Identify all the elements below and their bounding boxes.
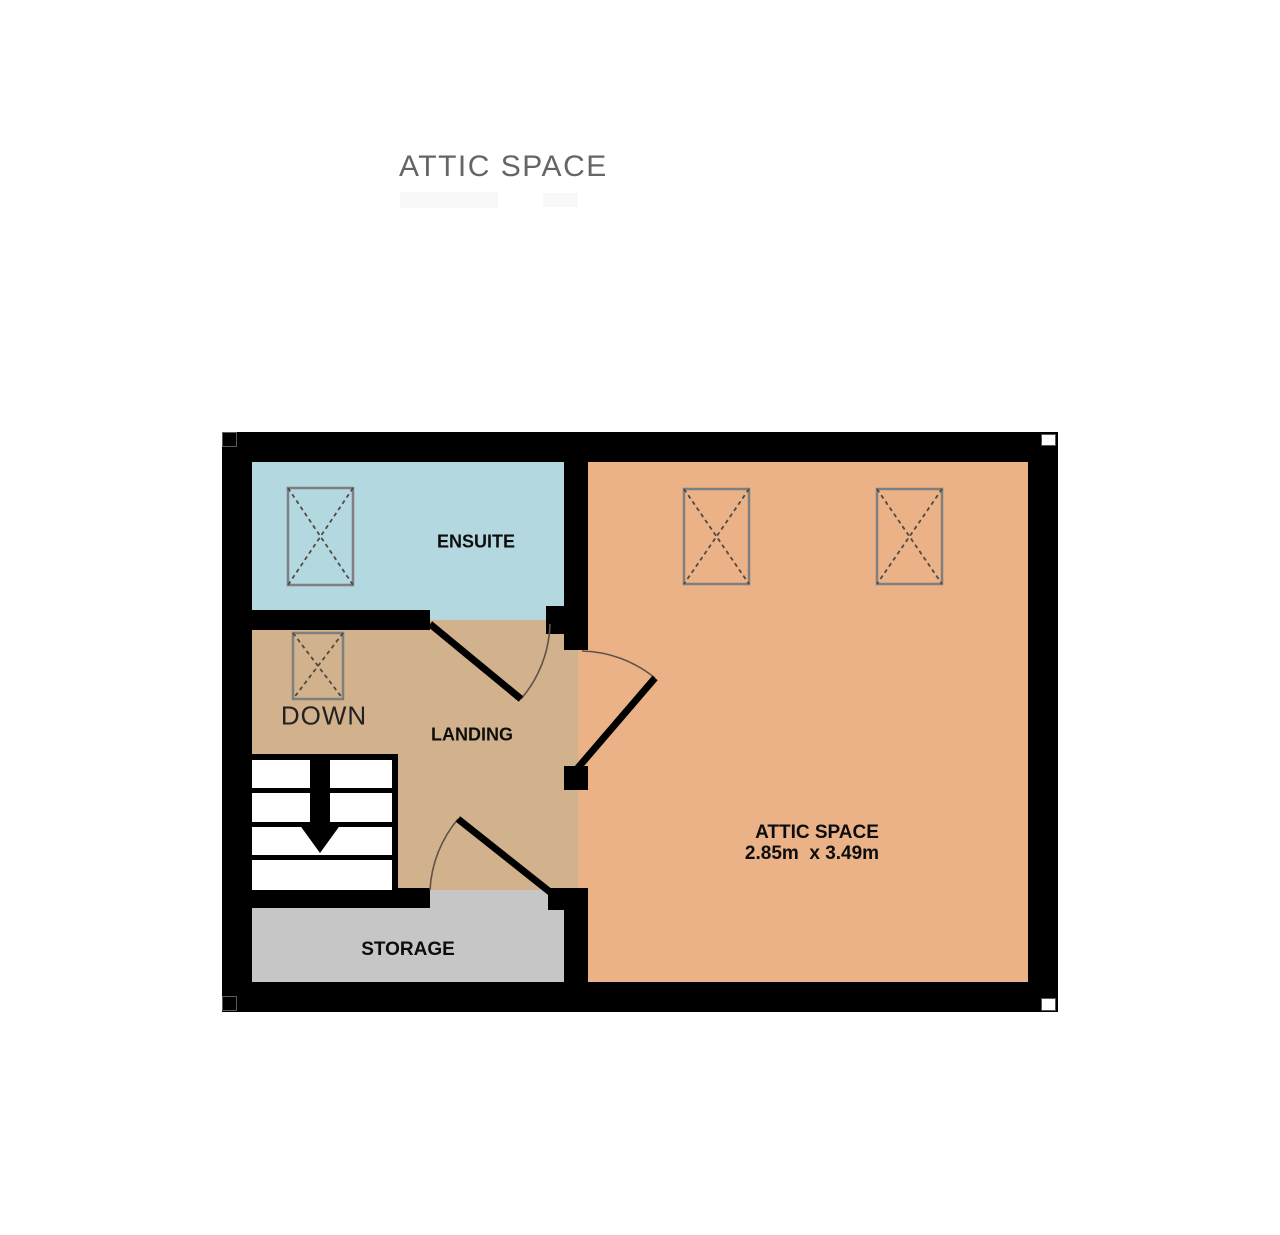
- floorplan-page: ATTIC SPACE: [0, 0, 1280, 1235]
- door-icon: [430, 819, 550, 892]
- skylight-icon: [877, 489, 942, 584]
- skylight-icon: [293, 633, 343, 699]
- watermark-remnant: [400, 192, 498, 208]
- skylight-icon: [288, 488, 353, 585]
- attic-space-dimensions: 2.85m x 3.49m: [745, 843, 879, 865]
- skylight-icon: [684, 489, 749, 584]
- landing-label: LANDING: [431, 725, 513, 746]
- page-title: ATTIC SPACE: [399, 150, 608, 184]
- corner-marker: [1041, 434, 1056, 446]
- ensuite-label: ENSUITE: [437, 532, 515, 553]
- attic-space-label: ATTIC SPACE: [755, 822, 879, 844]
- door-icon: [576, 651, 655, 770]
- stairs-down-label: DOWN: [281, 701, 367, 732]
- corner-marker: [222, 996, 237, 1011]
- watermark-remnant: [543, 193, 578, 207]
- corner-marker: [222, 432, 237, 447]
- door-icon: [430, 624, 550, 699]
- storage-label: STORAGE: [361, 939, 455, 961]
- corner-marker: [1041, 998, 1056, 1011]
- floor-plan: ENSUITE LANDING ATTIC SPACE 2.85m x 3.49…: [222, 432, 1058, 1012]
